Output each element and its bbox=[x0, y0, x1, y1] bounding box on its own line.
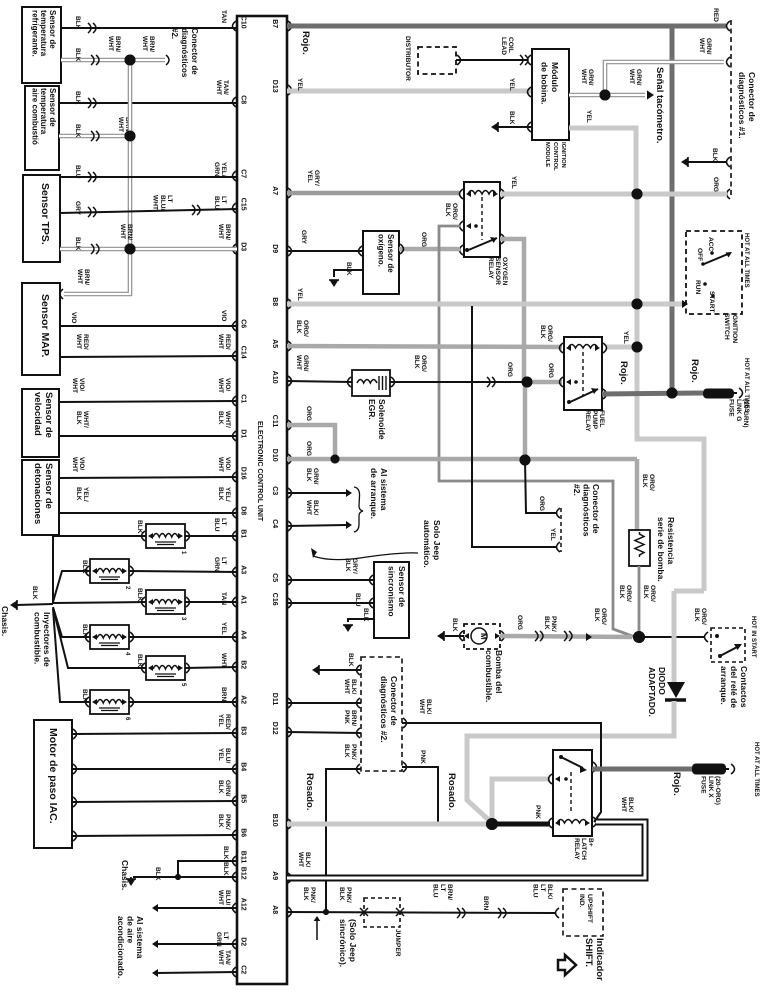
svg-text:YEL/GRN: YEL/GRN bbox=[213, 162, 227, 177]
svg-text:A7: A7 bbox=[271, 186, 278, 195]
svg-text:C11: C11 bbox=[271, 415, 278, 428]
svg-text:D8: D8 bbox=[240, 506, 247, 515]
svg-text:BLU/WHT: BLU/WHT bbox=[217, 890, 231, 906]
svg-text:BLK: BLK bbox=[31, 586, 38, 600]
svg-text:D12: D12 bbox=[271, 722, 278, 735]
svg-text:BRN: BRN bbox=[220, 687, 227, 702]
svg-text:BRN/WHT: BRN/WHT bbox=[76, 269, 90, 285]
svg-text:BLU: BLU bbox=[74, 165, 81, 179]
svg-text:PNK: PNK bbox=[534, 805, 541, 819]
svg-text:BRN/WHT: BRN/WHT bbox=[119, 224, 133, 240]
svg-text:B6: B6 bbox=[240, 828, 247, 837]
svg-text:JUMPER: JUMPER bbox=[394, 929, 401, 957]
svg-text:C16: C16 bbox=[271, 593, 278, 606]
svg-text:VIO: VIO bbox=[70, 312, 77, 323]
svg-text:COILLEAD: COILLEAD bbox=[500, 37, 514, 55]
svg-text:Motor de paso IAC.: Motor de paso IAC. bbox=[47, 728, 59, 824]
svg-text:D10: D10 bbox=[271, 449, 278, 462]
svg-text:Sensor TPS.: Sensor TPS. bbox=[39, 183, 51, 245]
svg-text:HOT AT ALL TIMES: HOT AT ALL TIMES bbox=[753, 742, 759, 797]
svg-text:B5: B5 bbox=[240, 794, 247, 803]
svg-text:ACC: ACC bbox=[707, 237, 714, 252]
svg-text:BLK: BLK bbox=[508, 111, 515, 125]
svg-text:A12: A12 bbox=[240, 898, 247, 911]
svg-text:C14: C14 bbox=[240, 346, 247, 359]
svg-text:RED: RED bbox=[712, 8, 719, 22]
svg-text:YEL: YEL bbox=[508, 78, 515, 91]
svg-text:B11: B11 bbox=[240, 851, 247, 864]
svg-text:B1: B1 bbox=[240, 529, 247, 538]
svg-text:B4: B4 bbox=[240, 762, 247, 771]
svg-text:ORG: ORG bbox=[547, 363, 554, 378]
svg-text:C5: C5 bbox=[271, 573, 278, 582]
svg-text:D1: D1 bbox=[240, 429, 247, 438]
svg-text:YEL: YEL bbox=[549, 528, 556, 541]
svg-text:A9: A9 bbox=[271, 871, 278, 880]
svg-text:C2: C2 bbox=[240, 965, 247, 974]
svg-text:C3: C3 bbox=[271, 486, 278, 495]
svg-text:D13: D13 bbox=[271, 80, 278, 93]
svg-text:VIO/WHT: VIO/WHT bbox=[217, 457, 231, 472]
svg-text:C6: C6 bbox=[240, 319, 247, 328]
svg-text:D2: D2 bbox=[240, 937, 247, 946]
svg-text:GRN/WHT: GRN/WHT bbox=[580, 69, 594, 86]
svg-text:Sensor develocidad: Sensor develocidad bbox=[32, 392, 54, 438]
svg-text:BLK: BLK bbox=[136, 588, 143, 602]
svg-text:C1: C1 bbox=[240, 394, 247, 403]
svg-text:BLK/WHT: BLK/WHT bbox=[418, 699, 432, 715]
svg-text:(Solo Jeepsincrónico).: (Solo Jeepsincrónico). bbox=[338, 919, 358, 967]
svg-text:ORG: ORG bbox=[516, 615, 523, 630]
svg-text:Rojo.: Rojo. bbox=[300, 31, 311, 55]
svg-text:VIO/WHT: VIO/WHT bbox=[217, 378, 231, 393]
svg-text:BLK: BLK bbox=[347, 653, 354, 667]
svg-text:BLK: BLK bbox=[222, 846, 229, 860]
svg-text:Rojo.: Rojo. bbox=[689, 359, 700, 383]
svg-text:ORG: ORG bbox=[420, 232, 427, 247]
svg-text:C7: C7 bbox=[240, 169, 247, 178]
svg-text:VIO: VIO bbox=[220, 310, 227, 321]
svg-text:PNK/BLK: PNK/BLK bbox=[338, 887, 352, 903]
svg-text:IGNITIONCONTROLMODULE: IGNITIONCONTROLMODULE bbox=[544, 142, 566, 171]
svg-text:YEL: YEL bbox=[296, 78, 303, 91]
svg-text:TAN/WHT: TAN/WHT bbox=[217, 950, 231, 965]
svg-text:OFF: OFF bbox=[696, 248, 703, 261]
svg-text:D11: D11 bbox=[271, 693, 278, 706]
svg-text:PNK/BLK: PNK/BLK bbox=[543, 616, 557, 632]
svg-text:B10: B10 bbox=[271, 814, 278, 827]
svg-text:BLK: BLK bbox=[345, 262, 352, 276]
svg-text:Chasis.: Chasis. bbox=[120, 860, 130, 890]
svg-text:PNK/BLK: PNK/BLK bbox=[343, 744, 357, 760]
svg-text:GRY: GRY bbox=[74, 201, 81, 216]
svg-text:BLK: BLK bbox=[136, 520, 143, 534]
svg-text:START: START bbox=[708, 291, 715, 313]
svg-text:GRY: GRY bbox=[300, 230, 307, 245]
svg-text:YEL: YEL bbox=[296, 288, 303, 301]
svg-text:ORG: ORG bbox=[538, 496, 545, 511]
svg-text:BLK/WHT: BLK/WHT bbox=[343, 679, 357, 695]
svg-text:YEL: YEL bbox=[510, 176, 517, 189]
svg-text:BLK/WHT: BLK/WHT bbox=[620, 797, 634, 813]
svg-text:RED/WHT: RED/WHT bbox=[217, 334, 231, 350]
svg-text:BLK: BLK bbox=[81, 560, 88, 574]
svg-text:B2: B2 bbox=[240, 660, 247, 669]
svg-text:D3: D3 bbox=[240, 242, 247, 251]
svg-text:BLK: BLK bbox=[74, 237, 81, 251]
svg-text:BLK: BLK bbox=[74, 48, 81, 62]
svg-text:BLK: BLK bbox=[74, 16, 81, 30]
svg-text:HOT IN START: HOT IN START bbox=[750, 616, 756, 658]
svg-text:YEL/BLK: YEL/BLK bbox=[75, 487, 89, 502]
svg-text:BRN/WHT: BRN/WHT bbox=[107, 36, 121, 52]
svg-text:BLK: BLK bbox=[74, 91, 81, 105]
svg-text:BRN/WHT: BRN/WHT bbox=[141, 36, 155, 52]
svg-text:BRN/WHT: BRN/WHT bbox=[217, 224, 231, 240]
svg-text:C4: C4 bbox=[271, 519, 278, 528]
svg-text:A10: A10 bbox=[271, 371, 278, 384]
svg-text:HOT AT ALL TIMES: HOT AT ALL TIMES bbox=[743, 233, 749, 288]
svg-text:RUN: RUN bbox=[694, 280, 701, 295]
svg-text:YEL: YEL bbox=[622, 331, 629, 344]
svg-text:D9: D9 bbox=[271, 244, 278, 253]
svg-text:PNK/BLK: PNK/BLK bbox=[217, 814, 231, 830]
svg-text:VIO/WHT: VIO/WHT bbox=[71, 378, 85, 393]
svg-text:ORG: ORG bbox=[712, 177, 719, 192]
svg-text:DISTRIBUTOR: DISTRIBUTOR bbox=[404, 36, 411, 81]
svg-text:BLK: BLK bbox=[451, 618, 458, 632]
svg-text:PNK: PNK bbox=[419, 750, 426, 764]
svg-text:A1: A1 bbox=[240, 595, 247, 604]
svg-text:A3: A3 bbox=[240, 565, 247, 574]
svg-text:A8: A8 bbox=[271, 905, 278, 914]
svg-text:BLK: BLK bbox=[711, 148, 718, 162]
svg-text:YEL: YEL bbox=[585, 110, 592, 123]
svg-text:BRN/PNK: BRN/PNK bbox=[343, 710, 357, 726]
svg-text:Sensor MAP.: Sensor MAP. bbox=[39, 294, 51, 357]
svg-text:B12: B12 bbox=[240, 867, 247, 880]
svg-text:BLK/WHT: BLK/WHT bbox=[297, 852, 311, 868]
svg-text:A5: A5 bbox=[271, 339, 278, 348]
svg-text:WHT: WHT bbox=[220, 653, 227, 668]
svg-text:BLK: BLK bbox=[222, 862, 229, 876]
svg-text:TAN: TAN bbox=[220, 10, 227, 23]
svg-text:VIO/WHT: VIO/WHT bbox=[71, 457, 85, 472]
svg-text:Rosado.: Rosado. bbox=[304, 773, 315, 810]
svg-text:D16: D16 bbox=[240, 467, 247, 480]
svg-text:ORG: ORG bbox=[305, 441, 312, 456]
svg-text:GRN/WHT: GRN/WHT bbox=[295, 355, 309, 372]
svg-text:Chasis.: Chasis. bbox=[0, 606, 10, 636]
svg-text:PNK/BLK: PNK/BLK bbox=[302, 887, 316, 903]
svg-text:B8: B8 bbox=[271, 297, 278, 306]
svg-text:BLU: BLU bbox=[354, 593, 361, 607]
svg-text:Inyectores decombustible.: Inyectores decombustible. bbox=[33, 612, 53, 667]
svg-text:GRN/WHT: GRN/WHT bbox=[628, 69, 642, 86]
svg-text:ORG: ORG bbox=[305, 406, 312, 421]
svg-text:BLK: BLK bbox=[154, 867, 161, 881]
svg-text:BLK: BLK bbox=[74, 124, 81, 138]
svg-text:C8: C8 bbox=[240, 95, 247, 104]
svg-text:A2: A2 bbox=[240, 695, 247, 704]
svg-text:B7: B7 bbox=[271, 19, 278, 28]
svg-text:ORG: ORG bbox=[506, 362, 513, 377]
svg-text:Rosado.: Rosado. bbox=[446, 773, 457, 810]
svg-text:ELECTRONIC CONTROL UNIT: ELECTRONIC CONTROL UNIT bbox=[256, 421, 263, 522]
svg-text:M: M bbox=[479, 633, 488, 640]
svg-text:Rojo.: Rojo. bbox=[618, 361, 629, 385]
svg-text:C10: C10 bbox=[240, 16, 247, 29]
svg-text:C15: C15 bbox=[240, 198, 247, 211]
svg-text:BLK: BLK bbox=[362, 608, 369, 622]
svg-text:YEL/BLK: YEL/BLK bbox=[217, 487, 231, 502]
svg-text:BLK: BLK bbox=[81, 624, 88, 638]
svg-text:TAN: TAN bbox=[220, 592, 227, 605]
svg-text:A4: A4 bbox=[240, 630, 247, 639]
svg-text:HOT AT ALL TIMES: HOT AT ALL TIMES bbox=[743, 358, 749, 413]
svg-text:Contactosdel relé dearranque.: Contactosdel relé dearranque. bbox=[719, 666, 749, 708]
svg-text:IGNITIONSWITCH: IGNITIONSWITCH bbox=[723, 313, 738, 343]
svg-text:B3: B3 bbox=[240, 726, 247, 735]
svg-text:Señal tacómetro.: Señal tacómetro. bbox=[654, 67, 665, 144]
svg-text:BLK: BLK bbox=[81, 689, 88, 703]
svg-text:YEL: YEL bbox=[220, 622, 227, 635]
svg-text:BLK/WHT: BLK/WHT bbox=[305, 500, 319, 516]
svg-text:TAN/WHT: TAN/WHT bbox=[215, 80, 229, 95]
svg-text:GRN/WHT: GRN/WHT bbox=[698, 38, 712, 55]
svg-text:RED/WHT: RED/WHT bbox=[75, 334, 89, 350]
svg-text:BLK: BLK bbox=[136, 654, 143, 668]
svg-text:Rojo.: Rojo. bbox=[671, 772, 682, 796]
svg-text:BRN: BRN bbox=[482, 896, 489, 911]
